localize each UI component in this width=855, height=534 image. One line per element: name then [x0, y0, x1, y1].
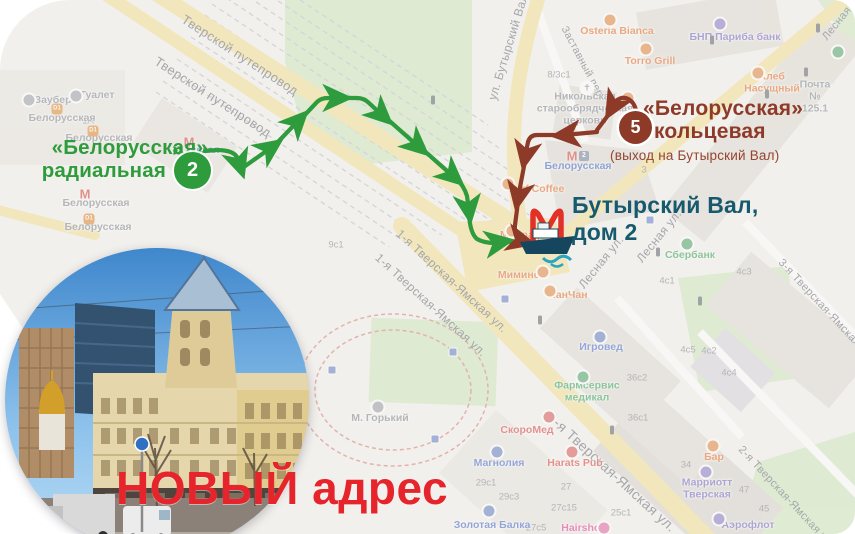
metro-station-icon: М [567, 149, 578, 164]
building-number-label: 45 [759, 504, 770, 515]
poi-label: Белорусская [64, 222, 131, 234]
headline-part1: НОВЫЙ [116, 462, 299, 514]
harats-pub-icon [567, 447, 578, 458]
traffic-light-icon [656, 248, 660, 257]
poi-label: Белорусская [544, 161, 611, 173]
poi-label: Марриотт Тверская [682, 477, 732, 501]
traffic-light-icon [698, 297, 702, 306]
street-label: 3-я Тверская-Ямская ул. [776, 257, 855, 363]
building-number-label: 29с3 [499, 492, 520, 503]
street-label: Лесная ул. [820, 0, 855, 43]
poi-label: СкороМед [500, 425, 553, 437]
igroved-icon [595, 332, 606, 343]
gorky-monument-icon [373, 402, 384, 413]
transit-stop-icon [501, 295, 510, 304]
building-number-label: 47 [739, 485, 750, 496]
d1-station-icon: D1 [88, 126, 99, 137]
poi-label: Белорусская [28, 113, 95, 125]
building-number-label: 4с3 [736, 267, 751, 278]
metro-line-2-badge: 2 [174, 152, 211, 189]
farmservis-icon [578, 372, 589, 383]
metro-line-5-badge: 5 [619, 111, 652, 144]
hairshop-icon [599, 523, 610, 534]
traffic-light-icon [610, 426, 614, 435]
traffic-light-icon [710, 36, 714, 45]
headline-part2: адрес [299, 462, 448, 514]
skoromed-icon [544, 412, 555, 423]
building-number-label: 29с1 [476, 478, 497, 489]
building-number-label: 3 [641, 165, 646, 176]
transit-stop-icon [431, 435, 440, 444]
poi-label: Osteria Bianca [580, 26, 654, 38]
building-number-label: 36с2 [627, 373, 648, 384]
route-map-infographic: Тверской путепроводТверской путепроводул… [0, 0, 855, 534]
label-destination-address: Бутырский Вал, дом 2 [572, 192, 758, 246]
ring-line1: «Белорусская» [643, 98, 803, 120]
green-poi-icon [833, 47, 844, 58]
metro-exit-chip: 2 [579, 151, 589, 161]
osteria-bianca-icon [605, 15, 616, 26]
poi-label: Surf Coffee [508, 184, 565, 196]
d1-station-icon: D1 [52, 104, 63, 115]
poi-label: Золотая Балка [454, 520, 531, 532]
traffic-light-icon [431, 96, 435, 105]
ring-line2: кольцевая [654, 120, 803, 143]
building-number-label: 36с1 [628, 413, 649, 424]
d1-station-icon: D1 [84, 214, 95, 225]
marriott-icon [701, 467, 712, 478]
building-number-label: 4с1 [659, 276, 674, 287]
metro-station-icon: М [80, 187, 91, 202]
torro-grill-icon [641, 44, 652, 55]
destination-line1: Бутырский Вал, [572, 192, 758, 219]
building-number-label: 27с15 [551, 503, 577, 514]
traffic-light-icon [804, 68, 808, 77]
bnp-bank-icon [715, 19, 726, 30]
zolotaya-balka-icon [484, 506, 495, 517]
traffic-light-icon [816, 24, 820, 33]
surf-coffee-icon [503, 179, 514, 190]
magnoliya-icon [492, 447, 503, 458]
toilet-icon [71, 91, 82, 102]
poi-label: Игровед [579, 342, 623, 354]
transit-stop-icon [449, 348, 458, 357]
hleb-nasushchny-icon [753, 68, 764, 79]
poi-label: Мимино [498, 270, 540, 282]
building-number-label: 34 [681, 460, 692, 471]
mrcraft-icon [507, 226, 518, 237]
zauber-icon [24, 95, 35, 106]
traffic-light-icon [538, 316, 542, 325]
poi-label: Фармсервис медикал [554, 380, 620, 404]
building-number-label: 4с4 [721, 368, 736, 379]
poi-label: Бар [704, 452, 724, 464]
poi-label: Torro Grill [625, 56, 676, 68]
headline-new-address: НОВЫЙ адрес [116, 461, 448, 515]
ring-subtitle: (выход на Бутырский Вал) [610, 148, 803, 163]
poi-label: Туалет [80, 90, 115, 102]
building-number-label: 27 [561, 482, 572, 493]
poi-label: БНП Париба банк [689, 32, 780, 44]
building-number-label: 4с2 [701, 346, 716, 357]
poi-label: Магнолия [474, 458, 525, 470]
poi-label: Сбербанк [665, 250, 715, 262]
poi-label: Harats Pub [547, 458, 602, 470]
building-number-label: 9с1 [328, 240, 343, 251]
chanchan-icon [545, 286, 556, 297]
transit-stop-icon [328, 366, 337, 375]
street-label: ул. Бутырский Вал [485, 0, 531, 102]
destination-line2: дом 2 [572, 219, 758, 246]
bar-icon [708, 441, 719, 452]
building-number-label: 4с5 [680, 345, 695, 356]
poi-label: Белорусская [62, 198, 129, 210]
poi-label: М. Горький [351, 413, 408, 425]
church-icon: ✝ [582, 83, 593, 94]
mimino-icon [538, 267, 549, 278]
building-number-label: 25с1 [611, 508, 632, 519]
aeroflot-icon [714, 514, 725, 525]
building-number-label: 8/3с1 [547, 70, 570, 81]
poi-label: Аэрофлот [721, 520, 774, 532]
